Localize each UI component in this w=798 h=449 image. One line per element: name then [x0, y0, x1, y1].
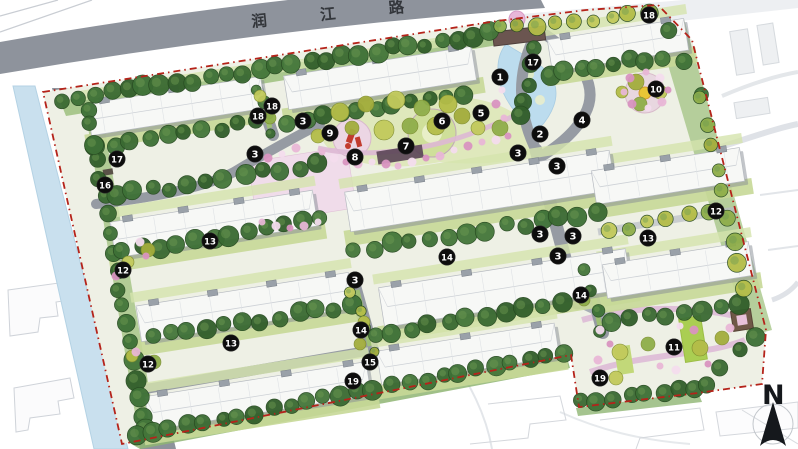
plan-marker-15: 15: [362, 354, 378, 370]
svg-text:13: 13: [204, 237, 216, 247]
svg-text:4: 4: [579, 115, 586, 126]
svg-text:19: 19: [347, 377, 359, 387]
plan-marker-19: 19: [345, 373, 361, 389]
plan-marker-8: 8: [347, 149, 363, 165]
svg-text:14: 14: [441, 253, 453, 263]
plan-marker-16: 16: [97, 177, 113, 193]
svg-text:12: 12: [710, 207, 722, 217]
svg-text:19: 19: [594, 374, 606, 384]
plan-marker-13: 13: [223, 335, 239, 351]
context-building: [730, 23, 779, 119]
svg-text:11: 11: [668, 343, 680, 353]
svg-text:12: 12: [142, 360, 154, 370]
svg-text:17: 17: [111, 155, 123, 165]
svg-text:3: 3: [515, 148, 522, 159]
svg-text:3: 3: [352, 275, 359, 286]
svg-text:13: 13: [225, 339, 237, 349]
plan-marker-3: 3: [549, 158, 565, 174]
plan-marker-18: 18: [641, 7, 657, 23]
svg-text:7: 7: [403, 141, 410, 152]
plan-marker-14: 14: [573, 287, 589, 303]
plan-marker-12: 12: [140, 356, 156, 372]
svg-text:18: 18: [266, 102, 278, 112]
svg-text:3: 3: [252, 149, 259, 160]
master-plan: 1233333333456789101112121213131314141415…: [0, 0, 798, 449]
plan-marker-17: 17: [525, 54, 541, 70]
plan-marker-14: 14: [353, 322, 369, 338]
svg-text:10: 10: [650, 85, 662, 95]
svg-text:14: 14: [575, 291, 587, 301]
svg-text:17: 17: [527, 58, 539, 68]
plan-marker-4: 4: [574, 112, 590, 128]
svg-text:14: 14: [355, 326, 367, 336]
plan-marker-11: 11: [666, 339, 682, 355]
svg-text:3: 3: [554, 161, 561, 172]
plan-marker-3: 3: [550, 248, 566, 264]
plan-marker-3: 3: [347, 272, 363, 288]
plan-marker-18: 18: [250, 108, 266, 124]
plan-marker-6: 6: [434, 113, 450, 129]
north-label: N: [762, 380, 785, 411]
plan-marker-19: 19: [592, 370, 608, 386]
svg-text:15: 15: [364, 358, 376, 368]
svg-text:2: 2: [537, 129, 544, 140]
svg-text:18: 18: [643, 11, 655, 21]
svg-text:9: 9: [327, 128, 334, 139]
plan-marker-14: 14: [439, 249, 455, 265]
svg-text:3: 3: [570, 231, 577, 242]
plan-marker-10: 10: [648, 81, 664, 97]
plan-marker-12: 12: [115, 262, 131, 278]
svg-text:5: 5: [478, 108, 485, 119]
plan-marker-5: 5: [473, 105, 489, 121]
plan-marker-13: 13: [202, 233, 218, 249]
plan-marker-3: 3: [247, 146, 263, 162]
svg-text:8: 8: [352, 152, 359, 163]
svg-text:3: 3: [537, 229, 544, 240]
plan-marker-12: 12: [708, 203, 724, 219]
plan-marker-7: 7: [398, 138, 414, 154]
plan-marker-3: 3: [565, 228, 581, 244]
plan-marker-1: 1: [492, 69, 508, 85]
plan-marker-9: 9: [322, 125, 338, 141]
svg-text:13: 13: [642, 234, 654, 244]
svg-text:6: 6: [439, 116, 446, 127]
svg-text:3: 3: [300, 116, 307, 127]
plan-marker-3: 3: [510, 145, 526, 161]
plan-marker-3: 3: [532, 226, 548, 242]
svg-text:1: 1: [497, 72, 504, 83]
master-plan-canvas: 1233333333456789101112121213131314141415…: [0, 0, 798, 449]
svg-text:16: 16: [99, 181, 111, 191]
svg-text:12: 12: [117, 266, 129, 276]
svg-text:18: 18: [252, 112, 264, 122]
plan-marker-13: 13: [640, 230, 656, 246]
plan-marker-17: 17: [109, 151, 125, 167]
plan-marker-18: 18: [264, 98, 280, 114]
plan-marker-3: 3: [295, 113, 311, 129]
svg-text:3: 3: [555, 251, 562, 262]
plan-marker-2: 2: [532, 126, 548, 142]
